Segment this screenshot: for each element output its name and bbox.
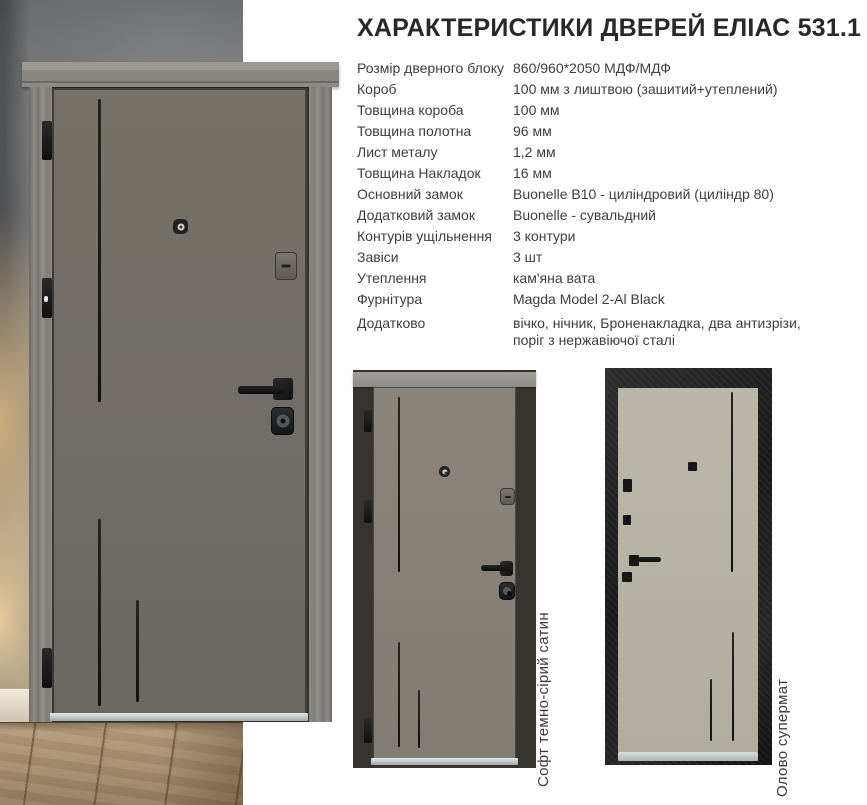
groove-line bbox=[418, 690, 420, 748]
door-handle bbox=[638, 557, 661, 562]
spec-row: Короб100 мм з лиштвою (зашитий+утеплений… bbox=[357, 81, 862, 98]
spec-row: ФурнітураMagda Model 2-Al Black bbox=[357, 291, 862, 308]
spec-value: 3 контури bbox=[513, 228, 813, 245]
peephole bbox=[173, 219, 188, 234]
variant-card-front bbox=[353, 370, 536, 768]
spec-label: Короб bbox=[357, 81, 513, 98]
spec-value: Buonelle - сувальдний bbox=[513, 207, 813, 224]
door-leaf bbox=[52, 88, 307, 715]
spec-label: Додатковий замок bbox=[357, 207, 513, 224]
spec-row: Основний замокBuonelle B10 - циліндровий… bbox=[357, 186, 862, 203]
groove-line bbox=[136, 600, 139, 702]
spec-label: Контурів ущільнення bbox=[357, 228, 513, 245]
lower-lock-knob bbox=[622, 572, 632, 582]
spec-row: Контурів ущільнення3 контури bbox=[357, 228, 862, 245]
variant-frame-cap bbox=[353, 372, 536, 387]
spec-panel: ХАРАКТЕРИСТИКИ ДВЕРЕЙ ЕЛІАС 531.1 Розмір… bbox=[357, 13, 862, 353]
hinge-middle bbox=[364, 500, 372, 523]
door-handle bbox=[238, 386, 285, 394]
spec-value: 860/960*2050 МДФ/МДФ bbox=[513, 60, 813, 77]
hinge-highlight bbox=[44, 296, 48, 302]
peephole bbox=[439, 466, 450, 477]
spec-value: 100 мм bbox=[513, 102, 813, 119]
spec-label: Товщина короба bbox=[357, 102, 513, 119]
spec-label: Лист металу bbox=[357, 144, 513, 161]
hinge-bottom bbox=[364, 718, 372, 743]
spec-value: Buonelle B10 - циліндровий (циліндр 80) bbox=[513, 186, 813, 203]
page-title: ХАРАКТЕРИСТИКИ ДВЕРЕЙ ЕЛІАС 531.1 bbox=[357, 13, 862, 43]
door-frame-right bbox=[309, 87, 332, 722]
spec-label: Основний замок bbox=[357, 186, 513, 203]
spec-label: Завіси bbox=[357, 249, 513, 266]
night-lock bbox=[500, 488, 515, 505]
lock-cylinder bbox=[499, 582, 515, 600]
spec-row: Товщина полотна96 мм bbox=[357, 123, 862, 140]
cylinder-ring bbox=[276, 415, 289, 428]
spec-label: Товщина Накладок bbox=[357, 165, 513, 182]
spec-label: Товщина полотна bbox=[357, 123, 513, 140]
variant-card-inner bbox=[605, 368, 772, 765]
baseboard bbox=[0, 688, 29, 723]
spec-row: Товщина Накладок16 мм bbox=[357, 165, 862, 182]
spec-value: 96 мм bbox=[513, 123, 813, 140]
threshold bbox=[50, 713, 308, 721]
cylinder-ring bbox=[503, 587, 511, 595]
spec-label: Утеплення bbox=[357, 270, 513, 287]
lock-cylinder bbox=[271, 407, 294, 435]
night-lock bbox=[275, 252, 297, 280]
groove-line bbox=[98, 519, 101, 706]
variant-label-inner: Олово супермат bbox=[774, 615, 791, 797]
floor-shadow bbox=[0, 722, 243, 732]
variant-door-leaf bbox=[618, 388, 758, 752]
peephole-cover bbox=[688, 462, 697, 471]
spec-row: Розмір дверного блоку860/960*2050 МДФ/МД… bbox=[357, 60, 862, 77]
groove-line bbox=[398, 397, 400, 572]
spec-row: Утепленнякам'яна вата bbox=[357, 270, 862, 287]
spec-value: 100 мм з лиштвою (зашитий+утеплений) bbox=[513, 81, 813, 98]
door-frame-left bbox=[29, 87, 52, 722]
night-lock-knob bbox=[623, 479, 632, 492]
catalog-page: Софт темно-сірий сатин Олово супермат ХА… bbox=[0, 0, 867, 805]
variant-door-leaf bbox=[373, 387, 516, 758]
spec-row: Додаткововічко, нічник, Броненакладка, д… bbox=[357, 315, 862, 349]
spec-value: 1,2 мм bbox=[513, 144, 813, 161]
groove-line bbox=[732, 632, 734, 741]
hinge-top bbox=[364, 410, 372, 432]
groove-line bbox=[710, 679, 712, 741]
spec-value: вічко, нічник, Броненакладка, два антизр… bbox=[513, 315, 813, 349]
spec-row: Завіси3 шт bbox=[357, 249, 862, 266]
spec-value: кам'яна вата bbox=[513, 270, 813, 287]
wood-floor bbox=[0, 722, 243, 805]
hinge-bottom bbox=[42, 648, 52, 688]
variant-frame-left bbox=[358, 387, 373, 766]
spec-value: 16 мм bbox=[513, 165, 813, 182]
peephole-lens bbox=[177, 223, 184, 230]
spec-row: Додатковий замокBuonelle - сувальдний bbox=[357, 207, 862, 224]
night-lock-slot bbox=[505, 496, 511, 498]
variant-label-front: Софт темно-сірий сатин bbox=[535, 565, 552, 787]
hinge-top bbox=[42, 121, 52, 160]
main-door-photo bbox=[29, 62, 332, 722]
lock-thumbturn bbox=[623, 515, 631, 525]
spec-table: Розмір дверного блоку860/960*2050 МДФ/МД… bbox=[357, 60, 862, 349]
groove-line bbox=[731, 392, 733, 572]
hinge-middle bbox=[42, 278, 52, 318]
spec-row: Товщина короба100 мм bbox=[357, 102, 862, 119]
door-frame-cap bbox=[22, 62, 339, 87]
peephole-lens bbox=[442, 469, 447, 474]
night-lock-slot bbox=[282, 265, 291, 268]
groove-line bbox=[398, 642, 400, 747]
groove-line bbox=[98, 99, 101, 402]
spec-value: 3 шт bbox=[513, 249, 813, 266]
variant-frame-right bbox=[516, 387, 531, 766]
spec-label: Додатково bbox=[357, 315, 513, 349]
spec-label: Фурнітура bbox=[357, 291, 513, 308]
spec-row: Лист металу1,2 мм bbox=[357, 144, 862, 161]
spec-value: Magda Model 2-Al Black bbox=[513, 291, 813, 308]
threshold bbox=[618, 752, 758, 761]
threshold bbox=[371, 758, 518, 765]
door-handle bbox=[481, 565, 509, 571]
spec-label: Розмір дверного блоку bbox=[357, 60, 513, 77]
